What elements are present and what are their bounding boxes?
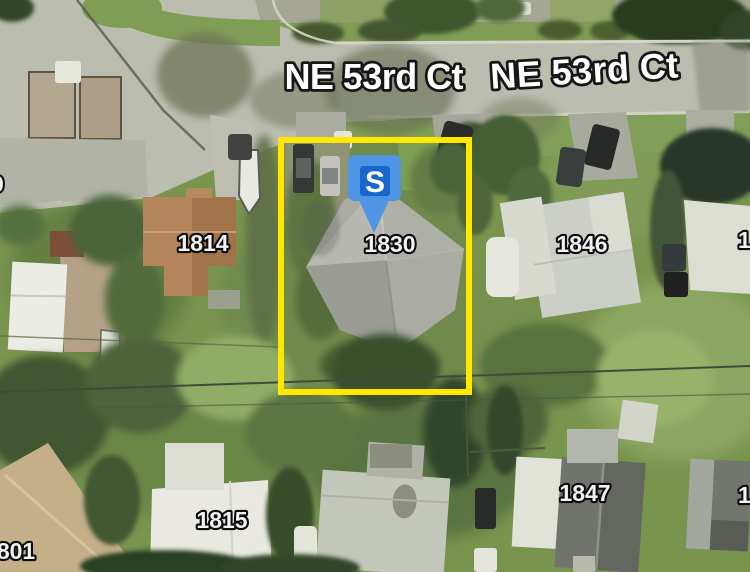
svg-text:S: S bbox=[365, 166, 385, 199]
svg-text:NE 53rd Ct: NE 53rd Ct bbox=[285, 56, 464, 97]
svg-text:1847: 1847 bbox=[559, 480, 610, 506]
svg-text:801: 801 bbox=[0, 538, 35, 564]
svg-text:1815: 1815 bbox=[196, 507, 247, 533]
svg-text:1: 1 bbox=[738, 482, 750, 508]
svg-text:0: 0 bbox=[0, 171, 4, 197]
svg-text:1830: 1830 bbox=[364, 231, 415, 257]
svg-text:1: 1 bbox=[738, 227, 750, 253]
svg-text:1846: 1846 bbox=[556, 231, 607, 257]
svg-text:1814: 1814 bbox=[177, 230, 228, 256]
